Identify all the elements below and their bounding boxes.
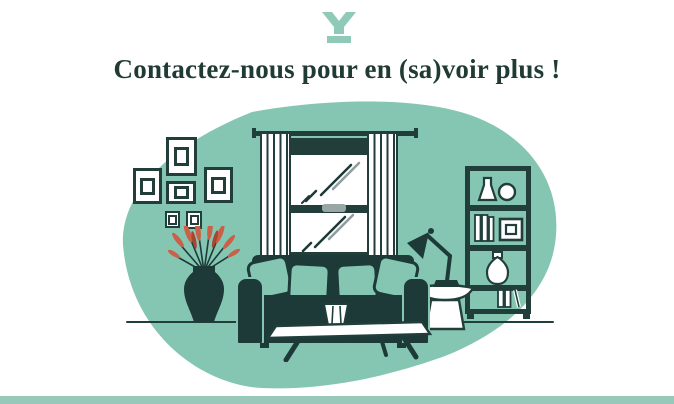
plant-leaves — [168, 226, 241, 260]
table-top — [268, 322, 430, 338]
shelf-photo-frame-mat — [506, 225, 516, 234]
picture-frame-mat — [174, 147, 189, 166]
plant-stems — [174, 228, 234, 272]
white-vase-icon — [487, 257, 508, 284]
plant-in-vase — [168, 226, 242, 328]
book — [482, 215, 488, 241]
picture-frame — [166, 137, 197, 176]
book — [505, 290, 511, 307]
page: Contactez-nous pour en (sa)voir plus ! — [0, 0, 674, 404]
table-leg — [286, 338, 300, 360]
bookshelf-items — [470, 171, 526, 309]
picture-frame-mat — [211, 177, 226, 194]
picture-frame — [204, 167, 233, 203]
sofa-armrest-left — [236, 277, 264, 345]
bookshelf-leg — [523, 313, 530, 319]
curtain-rod-finial — [252, 128, 256, 138]
footer-accent-bar — [0, 396, 674, 404]
living-room-illustration — [0, 0, 674, 404]
curtain-rod-finial — [414, 128, 418, 138]
book — [475, 215, 481, 241]
plant-vase — [184, 266, 224, 322]
flask-icon — [479, 178, 496, 200]
coffee-table — [264, 298, 436, 362]
curtain-right — [367, 132, 398, 258]
picture-frame-mat — [168, 215, 177, 225]
picture-frame-mat — [190, 215, 199, 225]
picture-frame-mat — [174, 186, 189, 199]
table-vase — [324, 304, 348, 325]
table-leg — [402, 335, 416, 357]
picture-frame-mat — [140, 178, 155, 195]
table-leg — [380, 335, 386, 355]
picture-frame — [166, 181, 196, 204]
picture-frame — [133, 168, 162, 204]
sphere-icon — [499, 184, 515, 200]
curtain-left — [260, 132, 291, 258]
book — [498, 290, 504, 307]
book — [489, 217, 494, 241]
